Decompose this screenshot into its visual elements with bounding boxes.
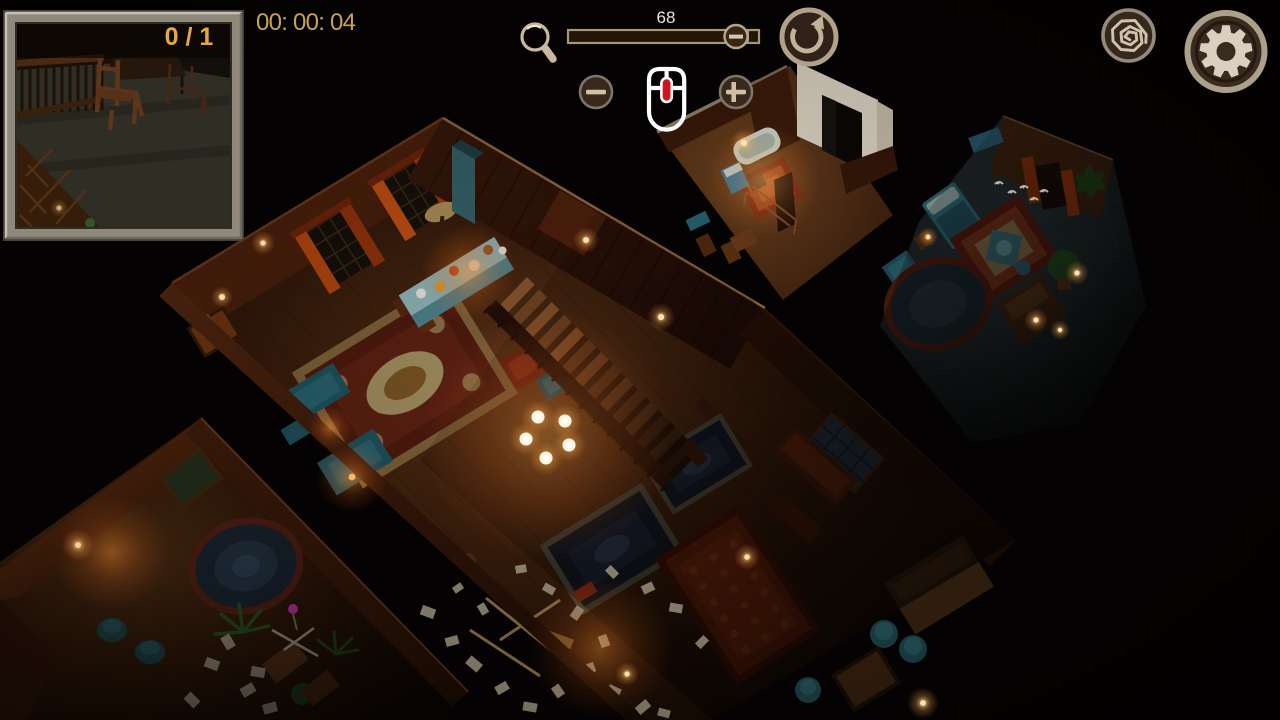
svg-text:68: 68 xyxy=(657,8,676,27)
svg-text:0 / 1: 0 / 1 xyxy=(165,23,214,51)
svg-text:00: 00: 04: 00: 00: 04 xyxy=(256,9,356,36)
